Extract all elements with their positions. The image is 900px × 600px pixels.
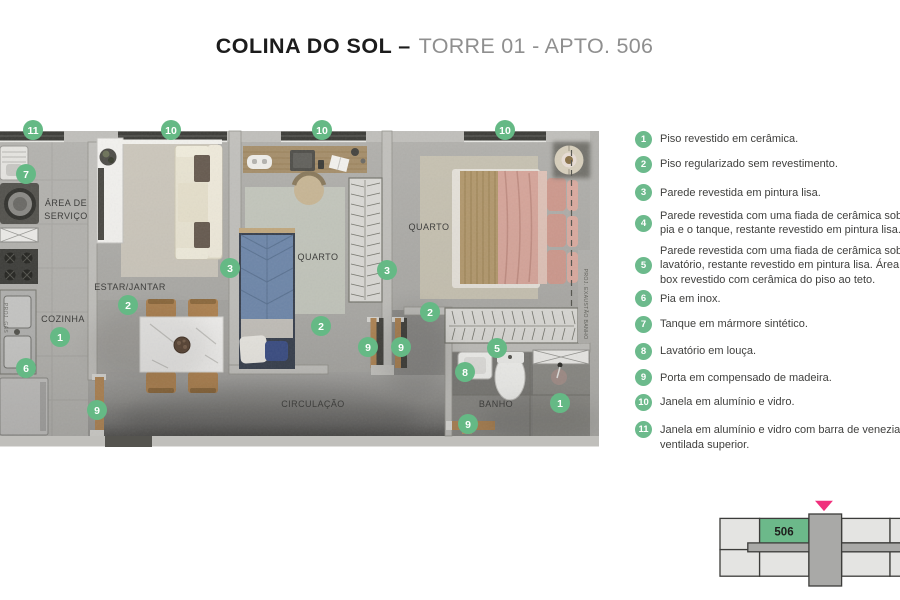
- svg-text:9: 9: [398, 342, 404, 354]
- svg-text:2: 2: [427, 307, 433, 319]
- svg-text:8: 8: [462, 367, 468, 379]
- svg-text:6: 6: [23, 363, 29, 375]
- svg-text:11: 11: [27, 125, 38, 137]
- svg-text:QUARTO: QUARTO: [409, 222, 450, 232]
- svg-text:PROJ. EXAUSTÃO BANHO: PROJ. EXAUSTÃO BANHO: [582, 269, 589, 340]
- svg-text:ESTAR/JANTAR: ESTAR/JANTAR: [94, 282, 166, 292]
- svg-text:9: 9: [94, 405, 100, 417]
- svg-text:3: 3: [227, 263, 233, 275]
- svg-text:PROJ. GÁS: PROJ. GÁS: [2, 303, 9, 334]
- svg-text:COZINHA: COZINHA: [41, 314, 85, 324]
- svg-text:BANHO: BANHO: [479, 399, 513, 409]
- svg-text:506: 506: [774, 527, 793, 539]
- svg-text:1: 1: [557, 398, 563, 410]
- svg-text:5: 5: [494, 343, 500, 355]
- svg-text:9: 9: [465, 419, 471, 431]
- svg-text:1: 1: [57, 332, 63, 344]
- svg-text:3: 3: [384, 265, 390, 277]
- svg-text:9: 9: [365, 342, 371, 354]
- svg-text:7: 7: [23, 169, 29, 181]
- svg-text:10: 10: [499, 125, 511, 137]
- svg-text:10: 10: [316, 125, 328, 137]
- svg-text:QUARTO: QUARTO: [298, 252, 339, 262]
- svg-text:2: 2: [125, 300, 131, 312]
- svg-text:2: 2: [318, 321, 324, 333]
- svg-text:10: 10: [165, 125, 177, 137]
- svg-text:SERVIÇO: SERVIÇO: [44, 211, 88, 221]
- svg-text:ÁREA DE: ÁREA DE: [45, 198, 87, 208]
- svg-text:CIRCULAÇÃO: CIRCULAÇÃO: [281, 399, 345, 409]
